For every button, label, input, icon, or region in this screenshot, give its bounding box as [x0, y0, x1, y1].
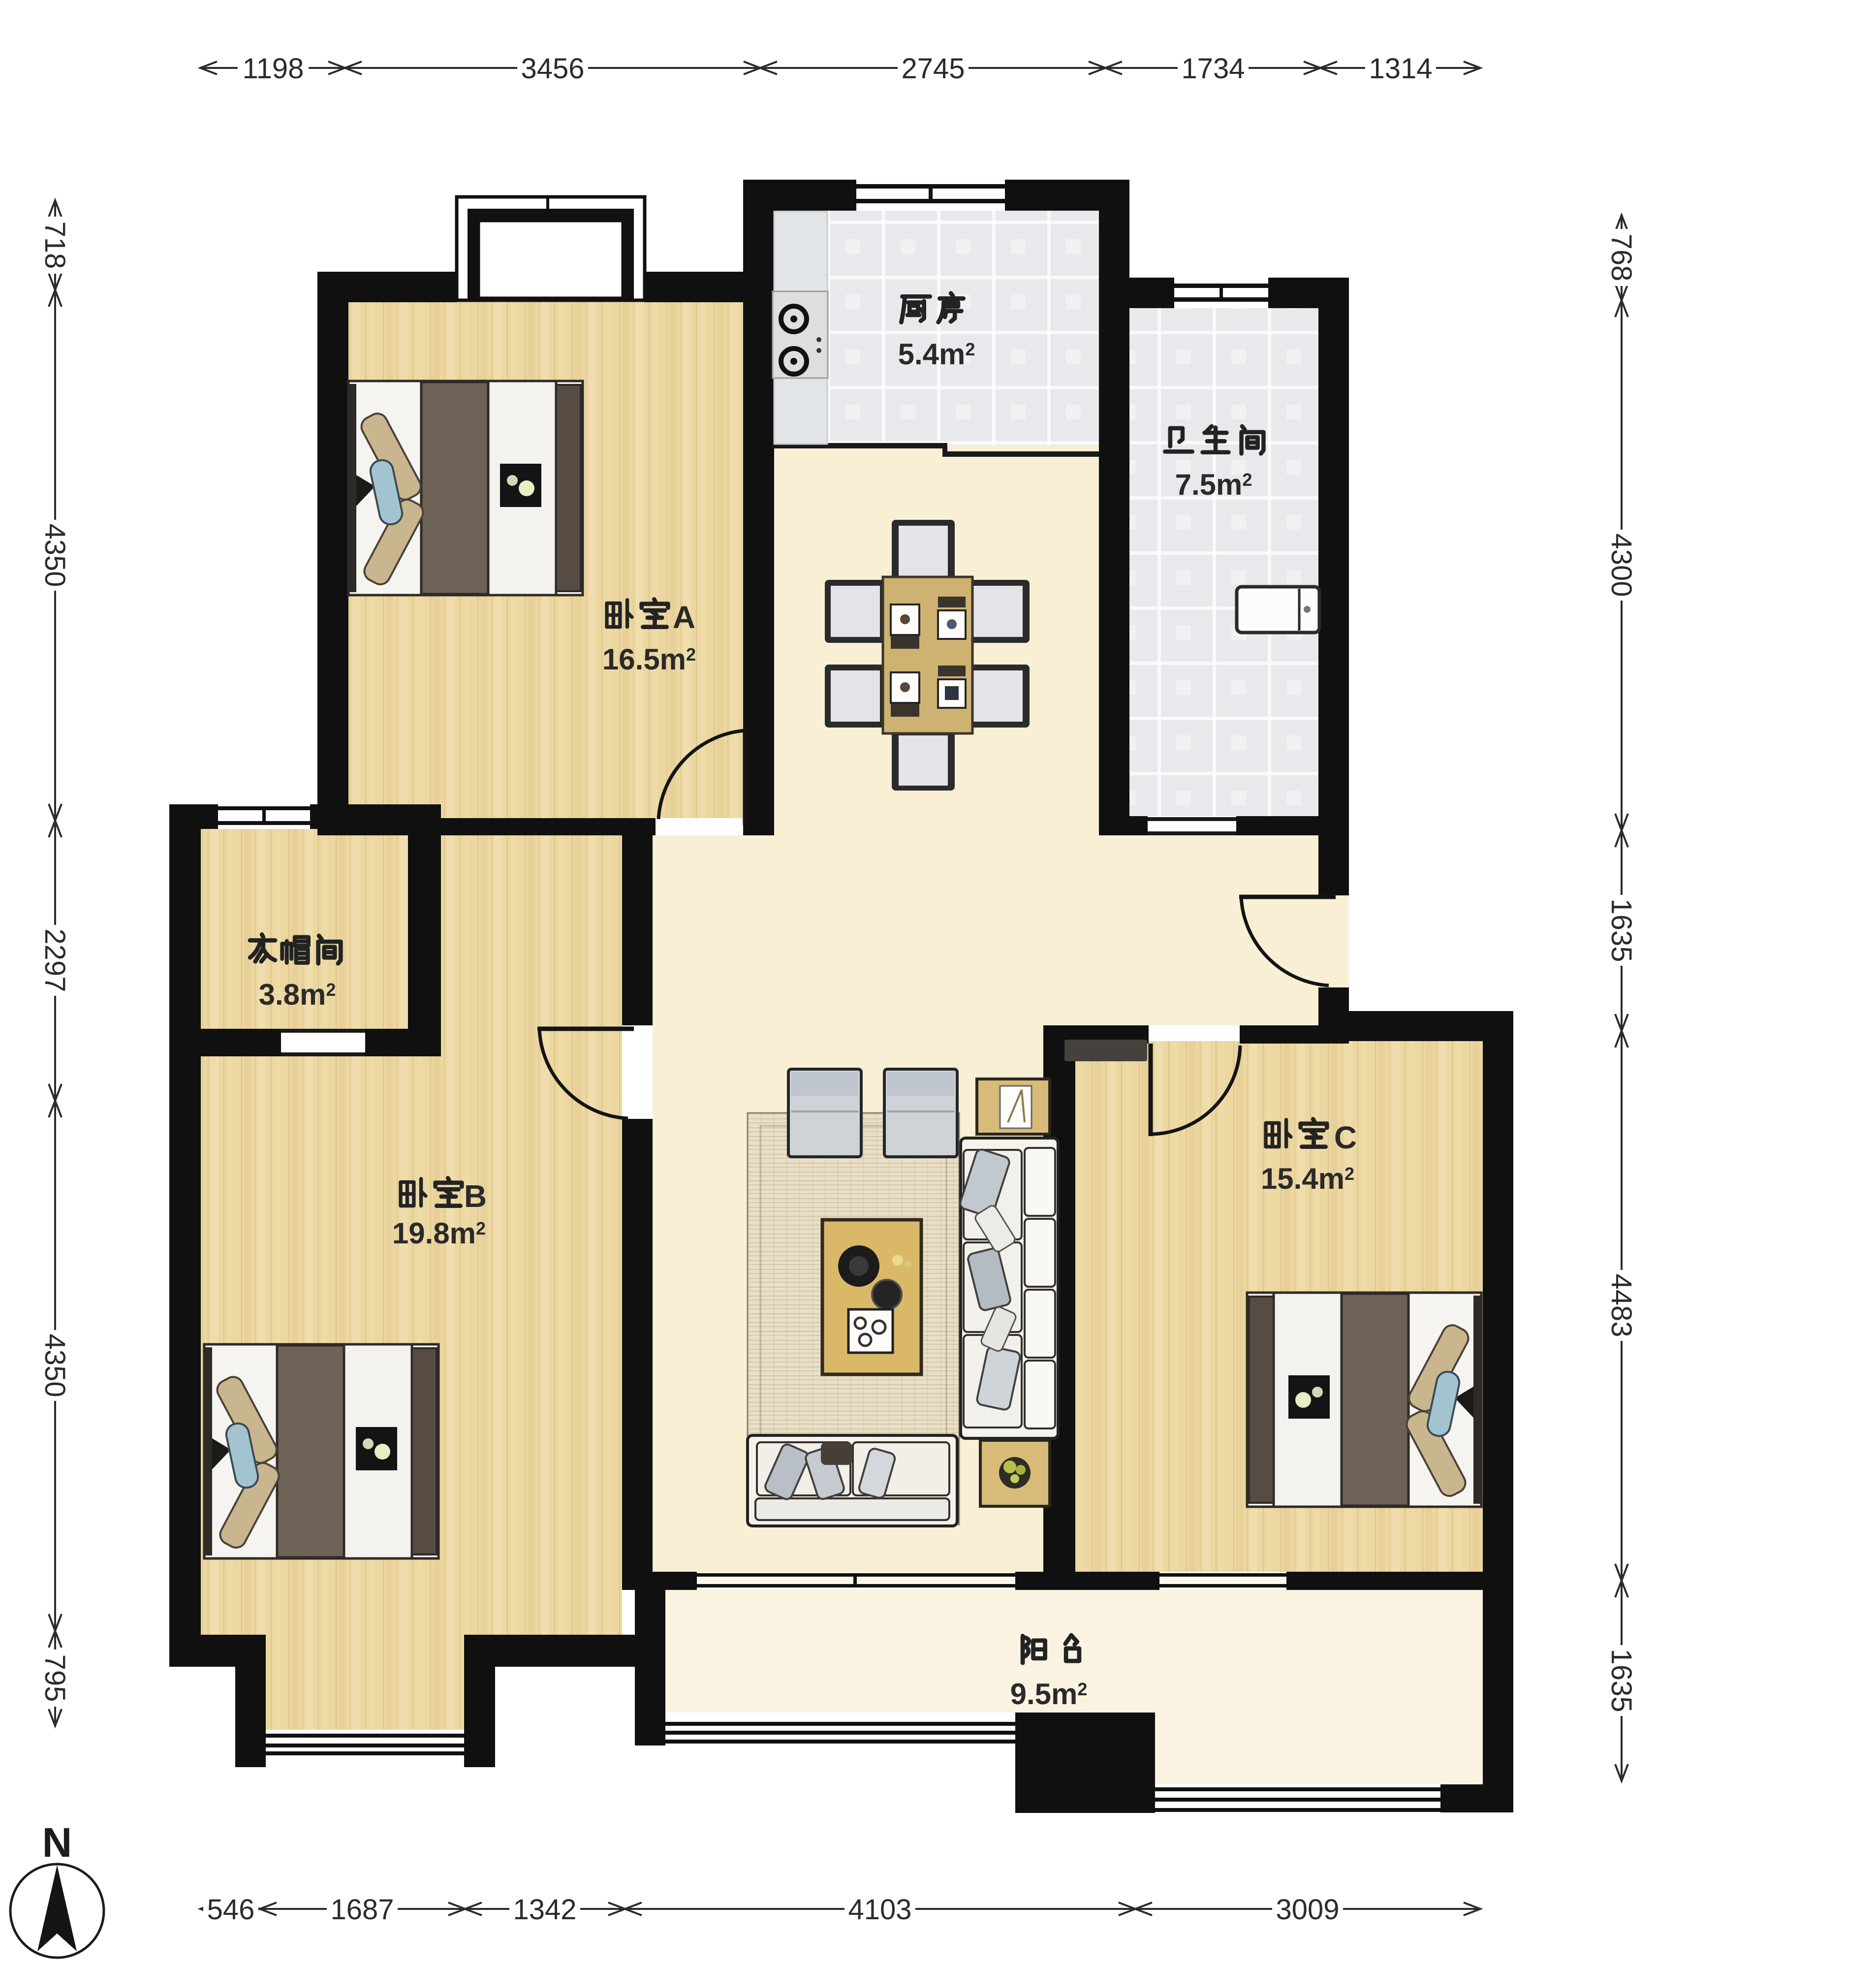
svg-text:B: B [464, 1178, 487, 1214]
svg-text:718: 718 [39, 222, 71, 269]
svg-text:9.5m2: 9.5m2 [1010, 1678, 1088, 1711]
svg-text:16.5m2: 16.5m2 [602, 643, 696, 676]
svg-text:4103: 4103 [848, 1894, 911, 1926]
svg-text:15.4m2: 15.4m2 [1261, 1162, 1354, 1195]
svg-text:4350: 4350 [39, 1333, 71, 1397]
svg-text:5.4m2: 5.4m2 [898, 338, 975, 371]
svg-text:1314: 1314 [1369, 53, 1432, 85]
svg-text:1687: 1687 [330, 1894, 394, 1926]
svg-text:3.8m2: 3.8m2 [259, 978, 336, 1011]
svg-text:4350: 4350 [39, 523, 71, 587]
svg-text:768: 768 [1605, 234, 1637, 282]
svg-text:3456: 3456 [521, 53, 584, 85]
svg-text:1342: 1342 [513, 1894, 576, 1926]
svg-text:1198: 1198 [243, 53, 304, 85]
svg-text:7.5m2: 7.5m2 [1175, 468, 1252, 501]
svg-text:1635: 1635 [1605, 898, 1637, 962]
svg-text:4483: 4483 [1605, 1273, 1637, 1337]
svg-text:4300: 4300 [1605, 533, 1637, 597]
svg-text:795: 795 [39, 1654, 71, 1702]
svg-text:C: C [1334, 1120, 1357, 1155]
svg-text:19.8m2: 19.8m2 [392, 1217, 486, 1250]
svg-text:A: A [673, 600, 695, 635]
svg-text:546: 546 [207, 1894, 255, 1926]
svg-text:2745: 2745 [901, 53, 965, 85]
svg-text:1734: 1734 [1181, 53, 1245, 85]
svg-text:2297: 2297 [39, 928, 71, 992]
svg-text:3009: 3009 [1276, 1894, 1339, 1926]
svg-text:N: N [42, 1819, 72, 1866]
svg-text:1635: 1635 [1605, 1649, 1637, 1712]
